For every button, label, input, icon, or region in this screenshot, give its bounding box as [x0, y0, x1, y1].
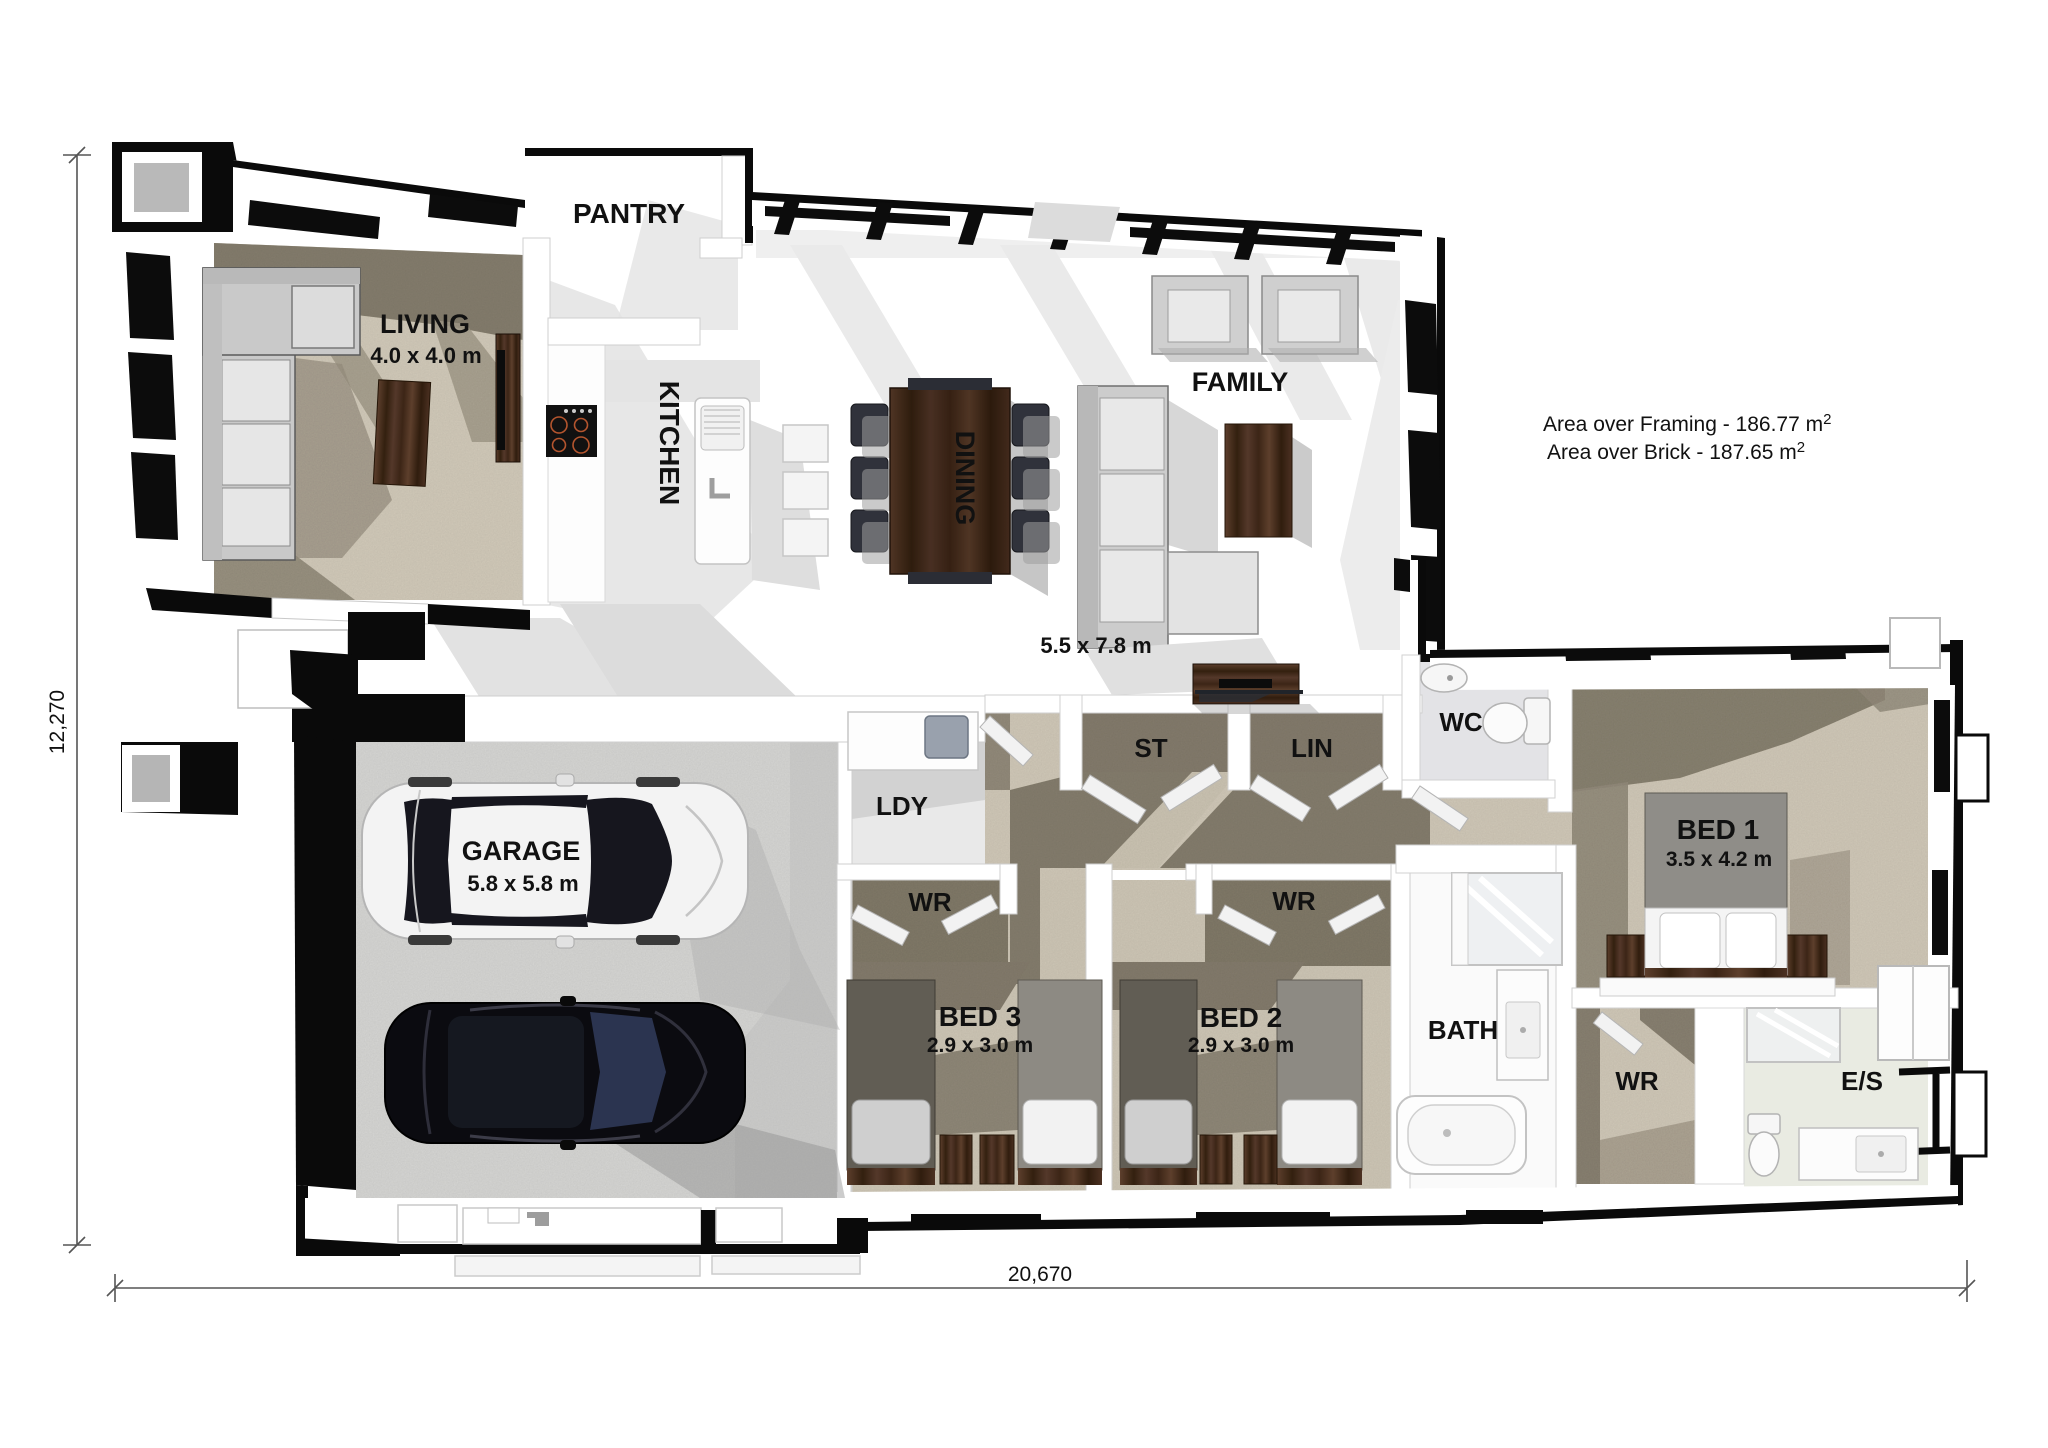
svg-text:E/S: E/S: [1841, 1066, 1883, 1096]
svg-text:KITCHEN: KITCHEN: [654, 381, 685, 505]
svg-text:Area over Brick - 187.65 m2: Area over Brick - 187.65 m2: [1547, 439, 1805, 464]
svg-text:PANTRY: PANTRY: [573, 198, 685, 229]
svg-text:3.5 x 4.2 m: 3.5 x 4.2 m: [1666, 848, 1772, 871]
svg-text:4.0 x 4.0 m: 4.0 x 4.0 m: [370, 343, 481, 368]
svg-text:BED 1: BED 1: [1677, 814, 1759, 845]
svg-text:DINING: DINING: [950, 431, 980, 526]
svg-text:WR: WR: [1272, 886, 1316, 916]
svg-text:WR: WR: [1615, 1066, 1659, 1096]
svg-text:Area over Framing - 186.77 m2: Area over Framing - 186.77 m2: [1543, 411, 1831, 436]
svg-text:FAMILY: FAMILY: [1192, 367, 1289, 397]
svg-text:5.8 x 5.8 m: 5.8 x 5.8 m: [467, 871, 578, 896]
svg-text:2.9 x 3.0 m: 2.9 x 3.0 m: [1188, 1034, 1294, 1057]
svg-text:WC: WC: [1439, 707, 1483, 737]
svg-text:12,270: 12,270: [46, 690, 69, 754]
svg-text:WR: WR: [908, 887, 952, 917]
svg-text:LIVING: LIVING: [380, 309, 470, 339]
svg-text:LDY: LDY: [876, 791, 928, 821]
svg-text:BED 3: BED 3: [939, 1001, 1021, 1032]
svg-text:20,670: 20,670: [1008, 1263, 1072, 1286]
svg-text:5.5 x 7.8 m: 5.5 x 7.8 m: [1040, 633, 1151, 658]
svg-text:2.9 x 3.0 m: 2.9 x 3.0 m: [927, 1034, 1033, 1057]
svg-text:BED 2: BED 2: [1200, 1002, 1282, 1033]
svg-text:ST: ST: [1134, 733, 1167, 763]
svg-text:LIN: LIN: [1291, 733, 1333, 763]
svg-text:BATH: BATH: [1428, 1015, 1498, 1045]
svg-text:GARAGE: GARAGE: [462, 836, 581, 866]
